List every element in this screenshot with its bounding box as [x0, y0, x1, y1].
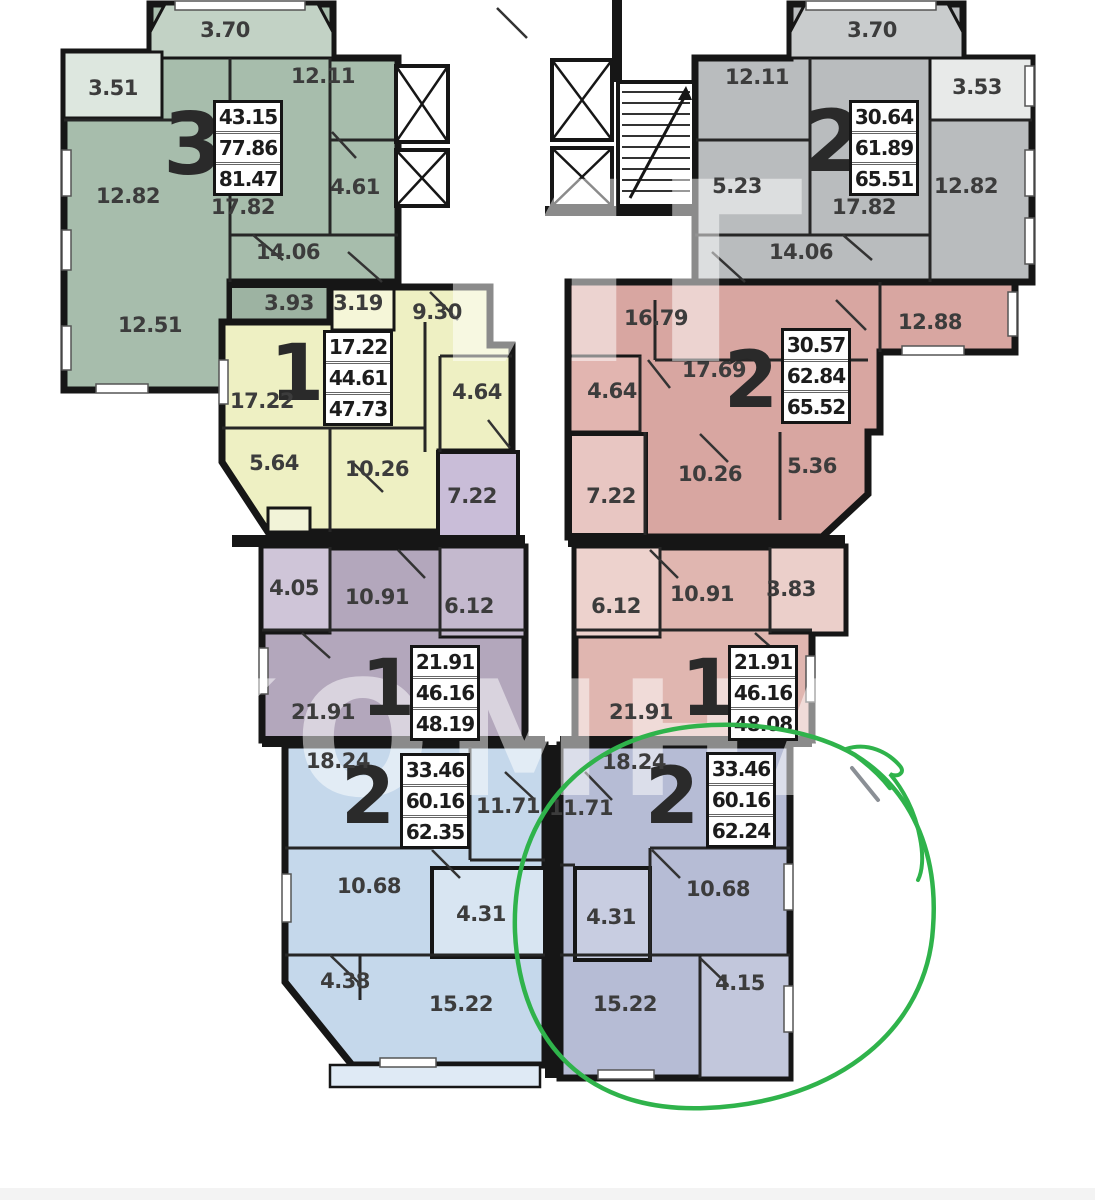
room-area-label: 12.88 — [898, 310, 962, 334]
room-area-label: 4.31 — [586, 905, 636, 929]
apartment-stats-box: 43.15 77.86 81.47 — [213, 100, 283, 196]
room-area-label: 10.68 — [686, 877, 750, 901]
room-area-label: 16.79 — [624, 306, 688, 330]
room-area-label: 5.23 — [712, 174, 762, 198]
staircase — [618, 82, 694, 206]
room-area-label: 3.70 — [200, 18, 250, 42]
stats-usable-area: 60.16 — [403, 787, 467, 818]
room-area-label: 21.91 — [291, 700, 355, 724]
room-area-label: 3.93 — [264, 291, 314, 315]
room-area-label: 12.11 — [725, 65, 789, 89]
apartment-stats-box: 30.64 61.89 65.51 — [849, 100, 919, 196]
stats-living-area: 33.46 — [403, 756, 467, 787]
purple-hall-612 — [440, 547, 525, 637]
room-area-label: 17.82 — [211, 195, 275, 219]
room-area-label: 10.26 — [345, 457, 409, 481]
room-area-label: 21.91 — [609, 700, 673, 724]
stats-living-area: 21.91 — [413, 648, 477, 679]
room-area-label: 12.11 — [291, 64, 355, 88]
stats-usable-area: 61.89 — [852, 134, 916, 165]
room-area-label: 4.64 — [587, 379, 637, 403]
room-area-label: 15.22 — [593, 992, 657, 1016]
room-area-label: 17.82 — [832, 195, 896, 219]
yellow-small-balcony — [268, 508, 310, 532]
stats-living-area: 33.46 — [709, 755, 773, 786]
apartment-stats-box: 33.46 60.16 62.24 — [706, 752, 776, 848]
room-area-label: 3.19 — [333, 291, 383, 315]
pink-hall-612 — [575, 547, 660, 637]
room-area-label: 7.22 — [586, 484, 636, 508]
stats-usable-area: 46.16 — [413, 679, 477, 710]
room-area-label: 11.71 — [549, 796, 613, 820]
room-area-label: 15.22 — [429, 992, 493, 1016]
stats-usable-area: 44.61 — [326, 364, 390, 395]
room-area-label: 5.36 — [787, 454, 837, 478]
stats-total-area: 81.47 — [216, 165, 280, 193]
room-area-label: 4.31 — [456, 902, 506, 926]
room-area-label: 4.15 — [715, 971, 765, 995]
stats-living-area: 30.64 — [852, 103, 916, 134]
room-area-label: 10.91 — [670, 582, 734, 606]
floor-plan: ИГ КОМНАТ 3 2 1 2 1 1 2 2 43.15 77.86 81… — [0, 0, 1095, 1200]
room-area-label: 3.53 — [952, 75, 1002, 99]
room-area-label: 6.12 — [444, 594, 494, 618]
stats-total-area: 62.35 — [403, 818, 467, 846]
room-area-label: 4.61 — [330, 175, 380, 199]
stats-usable-area: 60.16 — [709, 786, 773, 817]
room-area-label: 12.51 — [118, 313, 182, 337]
room-area-label: 17.69 — [682, 358, 746, 382]
apartment-stats-box: 21.91 46.16 48.19 — [410, 645, 480, 741]
room-area-label: 11.71 — [476, 794, 540, 818]
stats-total-area: 62.24 — [709, 817, 773, 845]
room-area-label: 10.91 — [345, 585, 409, 609]
room-area-label: 18.24 — [306, 749, 370, 773]
stats-total-area: 65.52 — [784, 393, 848, 421]
apartment-stats-box: 33.46 60.16 62.35 — [400, 753, 470, 849]
stats-living-area: 30.57 — [784, 331, 848, 362]
stats-total-area: 65.51 — [852, 165, 916, 193]
stats-usable-area: 62.84 — [784, 362, 848, 393]
room-area-label: 3.83 — [766, 577, 816, 601]
room-area-label: 4.05 — [269, 576, 319, 600]
stats-usable-area: 77.86 — [216, 134, 280, 165]
room-area-label: 4.64 — [452, 380, 502, 404]
room-area-label: 12.82 — [934, 174, 998, 198]
room-area-label: 18.24 — [602, 750, 666, 774]
apartment-stats-box: 21.91 46.16 48.08 — [728, 645, 798, 741]
bottom-edge-strip — [0, 1188, 1095, 1200]
room-area-label: 10.68 — [337, 874, 401, 898]
stats-total-area: 48.08 — [731, 710, 795, 738]
blue-balcony-bottom — [330, 1065, 540, 1087]
room-area-label: 14.06 — [256, 240, 320, 264]
apartment-type-number: 1 — [681, 650, 735, 728]
room-area-label: 14.06 — [769, 240, 833, 264]
stats-living-area: 17.22 — [326, 333, 390, 364]
room-area-label: 5.64 — [249, 451, 299, 475]
room-area-label: 17.22 — [230, 389, 294, 413]
stats-total-area: 47.73 — [326, 395, 390, 423]
stats-usable-area: 46.16 — [731, 679, 795, 710]
room-area-label: 3.51 — [88, 76, 138, 100]
apartment-type-number: 1 — [361, 650, 415, 728]
stats-living-area: 43.15 — [216, 103, 280, 134]
apartment-stats-box: 17.22 44.61 47.73 — [323, 330, 393, 426]
stats-living-area: 21.91 — [731, 648, 795, 679]
apartment-stats-box: 30.57 62.84 65.52 — [781, 328, 851, 424]
room-area-label: 10.26 — [678, 462, 742, 486]
room-area-label: 3.70 — [847, 18, 897, 42]
room-area-label: 7.22 — [447, 484, 497, 508]
room-area-label: 9.30 — [412, 300, 462, 324]
stats-total-area: 48.19 — [413, 710, 477, 738]
room-area-label: 6.12 — [591, 594, 641, 618]
room-area-label: 12.82 — [96, 184, 160, 208]
room-area-label: 4.38 — [320, 969, 370, 993]
